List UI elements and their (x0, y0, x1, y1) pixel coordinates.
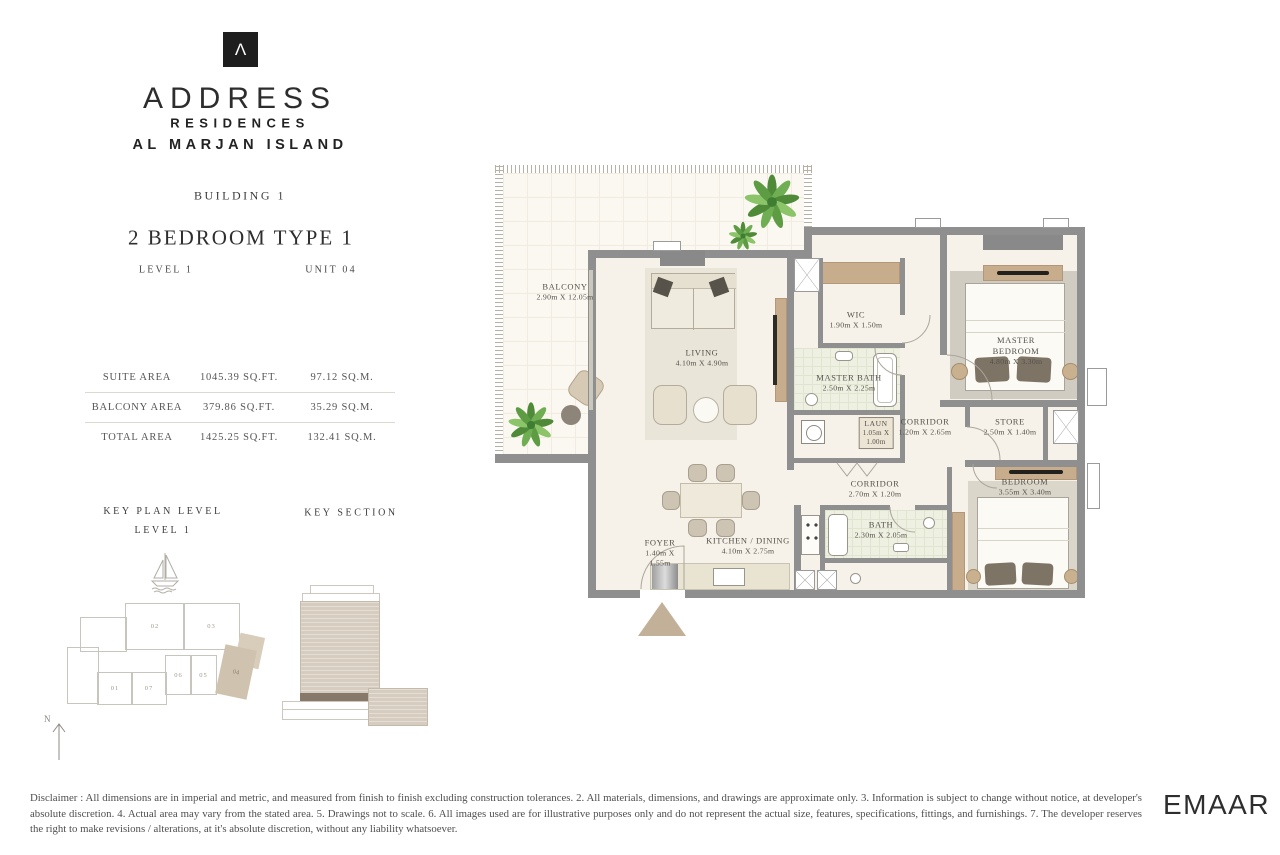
emaar-logo: EMAAR (1163, 789, 1270, 821)
unit-label: UNIT 04 (305, 265, 357, 276)
room-label-master-bedroom: MASTER BEDROOM4.80m X 3.30m (979, 335, 1053, 367)
area-row-label: SUITE AREA (85, 372, 189, 383)
plant-icon (728, 221, 758, 251)
area-row-label: BALCONY AREA (85, 402, 189, 413)
area-sqm: 35.29 SQ.M. (289, 402, 395, 413)
table-row: SUITE AREA 1045.39 SQ.FT. 97.12 SQ.M. (85, 363, 395, 392)
key-plan-unit-04-highlighted: 04 (215, 644, 257, 700)
room-label-bedroom: BEDROOM3.55m X 3.40m (999, 476, 1052, 497)
room-label-laundry: LAUN 1.05m X 1.00m (859, 417, 894, 449)
area-sqft: 1425.25 SQ.FT. (189, 432, 289, 443)
room-label-kitchen: KITCHEN / DINING4.10m X 2.75m (706, 535, 790, 556)
area-sqft: 1045.39 SQ.FT. (189, 372, 289, 383)
area-sqm: 97.12 SQ.M. (289, 372, 395, 383)
key-plan-unit-06: 06 (165, 655, 192, 695)
key-section-tower (300, 601, 380, 695)
room-label-master-bath: MASTER BATH2.50m X 2.25m (816, 372, 881, 393)
page-title: 2 BEDROOM TYPE 1 (128, 226, 354, 251)
plant-icon (507, 401, 555, 449)
disclaimer-text: Disclaimer : All dimensions are in imper… (30, 791, 1142, 838)
key-plan: 02 03 06 05 01 07 04 (60, 595, 275, 720)
room-label-wic: WIC1.90m X 1.50m (830, 309, 883, 330)
area-sqft: 379.86 SQ.FT. (189, 402, 289, 413)
key-section-annex (368, 688, 428, 726)
key-plan-outline (67, 647, 99, 704)
level-label: LEVEL 1 (139, 265, 193, 276)
room-label-store: STORE2.50m X 1.40m (984, 416, 1037, 437)
key-plan-unit-02: 02 (125, 603, 185, 650)
room-label-living: LIVING4.10m X 4.90m (676, 347, 729, 368)
key-plan-unit-03: 03 (183, 603, 240, 650)
brand-name: ADDRESS (143, 82, 337, 116)
logo-caret-icon: Λ (235, 40, 246, 60)
address-logo: Λ (223, 32, 258, 67)
room-label-balcony: BALCONY2.90m X 12.05m (536, 281, 593, 302)
area-sqm: 132.41 SQ.M. (289, 432, 395, 443)
area-table: SUITE AREA 1045.39 SQ.FT. 97.12 SQ.M. BA… (85, 363, 395, 452)
building-label: BUILDING 1 (194, 189, 286, 204)
room-label-bath: BATH2.30m X 2.05m (855, 519, 908, 540)
table-row: TOTAL AREA 1425.25 SQ.FT. 132.41 SQ.M. (85, 422, 395, 452)
room-label-corridor-lower: CORRIDOR2.70m X 1.20m (849, 478, 902, 499)
floorplan: BALCONY2.90m X 12.05m LIVING4.10m X 4.90… (495, 165, 1140, 643)
sailboat-icon (146, 550, 184, 594)
brand-line2: RESIDENCES (170, 116, 310, 131)
key-plan-unit-01: 01 (97, 672, 133, 705)
key-section-highlight-level (300, 693, 378, 701)
door-arcs (495, 165, 1140, 643)
brochure-page: Λ ADDRESS RESIDENCES AL MARJAN ISLAND BU… (0, 0, 1280, 855)
brand-line3: AL MARJAN ISLAND (132, 137, 347, 153)
room-label-corridor-upper: CORRIDOR1.20m X 2.65m (899, 416, 952, 437)
key-plan-unit-07: 07 (131, 672, 167, 705)
key-section (280, 583, 430, 725)
north-arrow-icon (48, 720, 70, 762)
key-section-title: KEY SECTION (304, 508, 398, 519)
key-plan-title: KEY PLAN LEVEL LEVEL 1 (103, 502, 222, 540)
room-label-foyer: FOYER 1.40m X 1.55m (645, 537, 676, 568)
table-row: BALCONY AREA 379.86 SQ.FT. 35.29 SQ.M. (85, 392, 395, 422)
area-row-label: TOTAL AREA (85, 432, 189, 443)
key-plan-unit-05: 05 (190, 655, 217, 695)
